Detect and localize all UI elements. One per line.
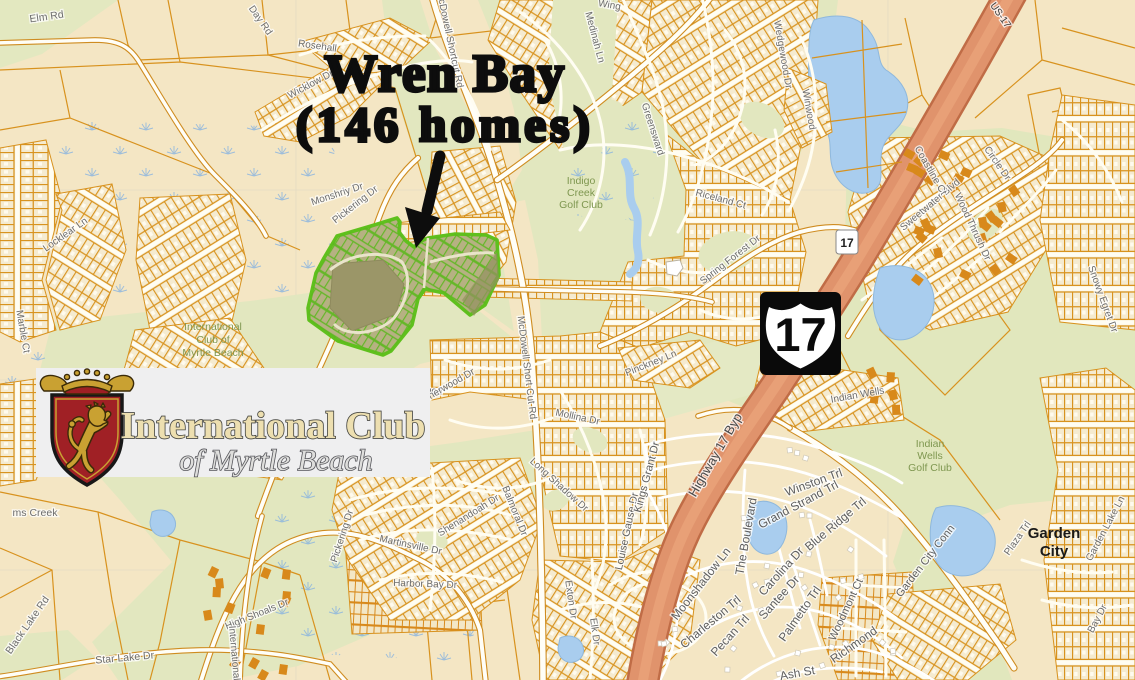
svg-text:ms Creek: ms Creek	[13, 507, 59, 519]
svg-text:Golf Club: Golf Club	[908, 462, 952, 474]
svg-text:17: 17	[774, 308, 826, 361]
svg-text:Indigo: Indigo	[567, 175, 596, 187]
svg-text:Golf Club: Golf Club	[559, 199, 603, 211]
svg-text:Indian: Indian	[916, 438, 945, 450]
svg-text:Myrtle Beach: Myrtle Beach	[182, 347, 243, 359]
svg-text:Club of: Club of	[196, 334, 229, 346]
svg-text:Creek: Creek	[567, 187, 596, 199]
svg-text:Harbor Bay Dr: Harbor Bay Dr	[393, 578, 458, 591]
svg-text:(146 homes): (146 homes)	[296, 97, 594, 152]
svg-text:Wren Bay: Wren Bay	[324, 45, 565, 103]
svg-text:17: 17	[840, 236, 854, 250]
svg-text:City: City	[1040, 543, 1069, 560]
svg-text:Wells: Wells	[917, 450, 942, 462]
svg-text:International: International	[184, 321, 242, 333]
svg-text:International Club: International Club	[120, 405, 425, 447]
svg-text:Garden: Garden	[1028, 525, 1081, 542]
svg-text:of Myrtle Beach: of Myrtle Beach	[179, 444, 372, 477]
